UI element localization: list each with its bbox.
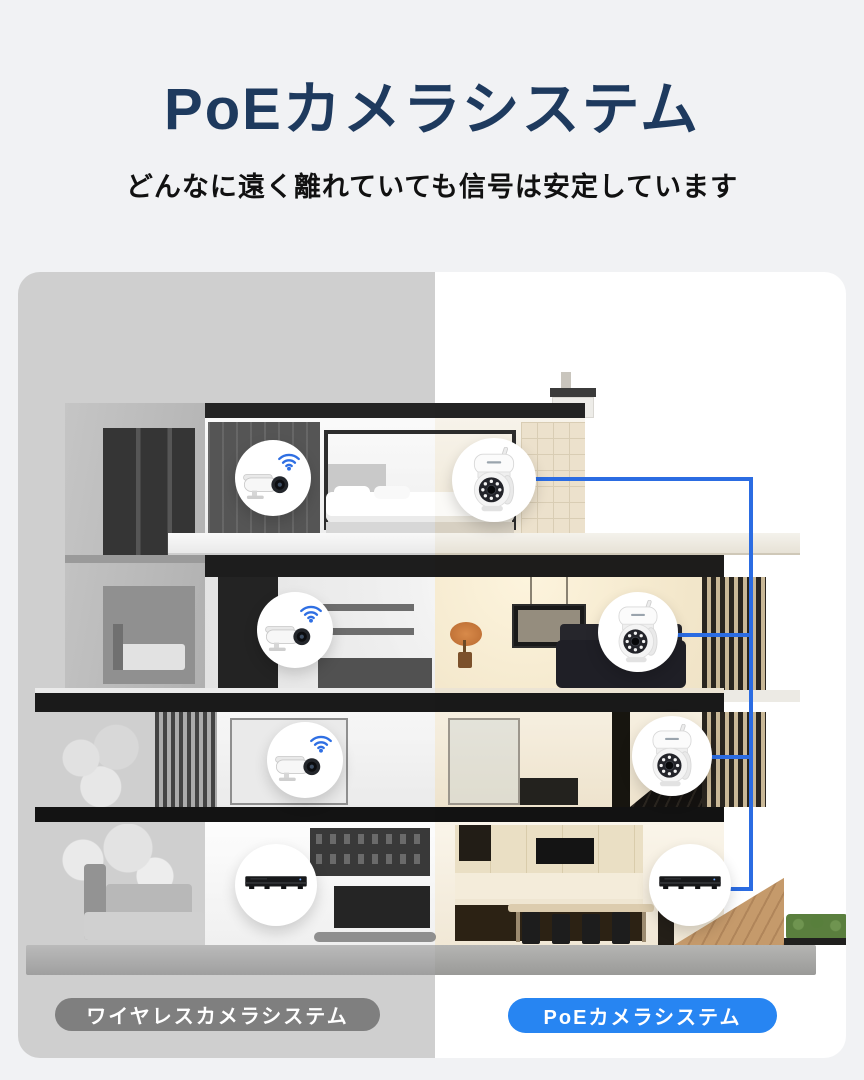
tower-bed-headboard	[113, 624, 123, 670]
flower-bouquet	[450, 622, 482, 646]
ptz-dome-camera-icon	[467, 447, 521, 513]
dining-table	[508, 904, 654, 912]
console-table	[520, 778, 578, 805]
page: PoEカメラシステム どんなに遠く離れていても信号は安定しています	[0, 0, 864, 1080]
poe-cable-branch-floor2	[712, 755, 753, 759]
stair-wall	[612, 712, 630, 807]
wireless-nvr-badge	[235, 844, 317, 926]
tv-cable	[566, 577, 568, 605]
glass-partition	[448, 718, 520, 805]
ptz-dome-camera-icon	[646, 724, 698, 788]
page-title: PoEカメラシステム	[0, 62, 864, 146]
nvr-recorder-icon	[244, 871, 308, 893]
bed-pillow	[334, 486, 370, 499]
rug	[314, 932, 436, 942]
poe-cable-branch-floor3	[676, 633, 753, 637]
bookshelf-books	[316, 854, 424, 864]
flower-pot	[458, 652, 472, 668]
bed-pillow	[374, 486, 410, 499]
page-subtitle: どんなに遠く離れていても信号は安定しています	[0, 165, 864, 204]
wireless-camera-badge-floor2	[267, 722, 343, 798]
wall-shelf	[320, 604, 414, 611]
chimney-cap	[550, 388, 596, 397]
kitchen-tv-panel	[536, 838, 594, 864]
flower-stem	[463, 640, 466, 652]
table-leg	[642, 912, 646, 942]
comparison-scene: ワイヤレスカメラシステム PoEカメラシステム	[18, 272, 846, 1058]
outdoor-sofa-seat	[84, 912, 204, 940]
backsplash	[455, 873, 643, 899]
nvr-recorder-icon	[658, 871, 722, 893]
flower-bed	[786, 914, 846, 940]
poe-camera-badge-floor3	[598, 592, 678, 672]
dining-chair	[522, 912, 540, 944]
table-leg	[516, 912, 520, 942]
tv-console	[334, 886, 430, 928]
flower-bed-base	[784, 938, 846, 945]
poe-camera-badge-floor4	[452, 438, 536, 522]
wireless-camera-badge-floor4	[235, 440, 311, 516]
range-hood	[459, 825, 491, 861]
poe-nvr-badge	[649, 844, 731, 926]
tower-ledge	[65, 555, 205, 563]
dining-chair	[582, 914, 600, 944]
louver-screen	[155, 712, 217, 807]
wifi-icon	[308, 731, 334, 753]
poe-system-label: PoEカメラシステム	[508, 998, 777, 1033]
dining-chair	[612, 912, 630, 944]
wifi-icon	[298, 601, 324, 623]
poe-camera-badge-floor2	[632, 716, 712, 796]
garden-tree	[48, 722, 158, 812]
poe-cable-trunk	[749, 477, 753, 891]
poe-cable-branch-floor4	[530, 477, 753, 481]
bookshelf-books	[316, 834, 424, 844]
dining-chair	[552, 914, 570, 944]
ptz-dome-camera-icon	[612, 600, 664, 664]
wifi-icon	[276, 449, 302, 471]
wall-shelf	[320, 628, 414, 635]
tv-cable	[530, 577, 532, 605]
tower-bed	[113, 644, 185, 670]
sideboard	[318, 658, 432, 690]
wireless-system-label: ワイヤレスカメラシステム	[55, 998, 380, 1031]
balcony-tip	[724, 690, 800, 702]
wireless-camera-badge-floor3	[257, 592, 333, 668]
